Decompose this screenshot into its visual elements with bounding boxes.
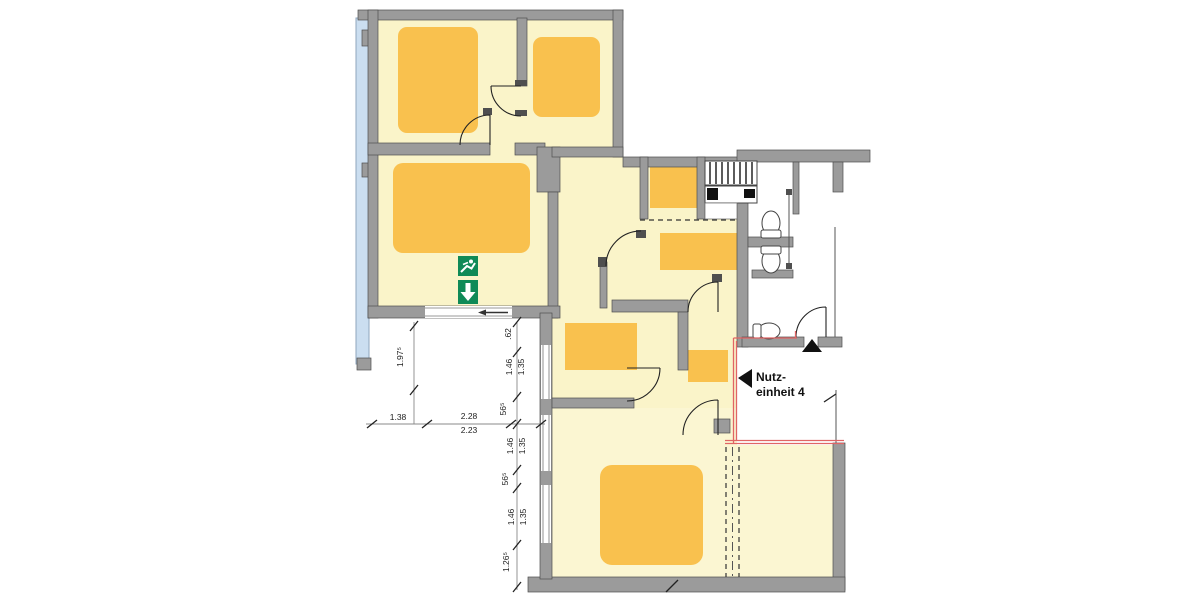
dimension-label: 1.35 [516, 358, 526, 375]
furniture-small-top [650, 167, 697, 208]
dimension-label: 1.35 [517, 437, 527, 454]
dimension-label: 1.46 [505, 437, 515, 454]
furniture-hall [660, 233, 740, 270]
room-bottom-right [737, 445, 833, 578]
dimension-label: 1.46 [506, 508, 516, 525]
shaft-detail [744, 189, 755, 198]
window [541, 345, 551, 399]
exit-sign [458, 256, 478, 304]
dimension-label: 56⁵ [500, 473, 510, 486]
unit-label-line2: einheit 4 [756, 385, 805, 399]
shaft-detail [707, 188, 718, 200]
dimension-label: 1.97⁵ [395, 347, 405, 367]
furniture-corridor [688, 350, 728, 382]
door-jamb [712, 274, 722, 282]
dimension-label: 1.38 [390, 412, 407, 422]
toilet-tank [753, 324, 761, 338]
balcony-wall-end [357, 358, 371, 370]
floorplan-svg: Nutz- einheit 4 1.97⁵1.382.282.23.621.46… [0, 0, 1200, 600]
bed-living [393, 163, 530, 253]
door-jamb [515, 80, 527, 86]
toilet-tank [761, 246, 781, 254]
bed-bottom [600, 465, 703, 565]
bed-top-right [533, 37, 600, 117]
floorplan-canvas: Nutz- einheit 4 1.97⁵1.382.282.23.621.46… [0, 0, 1200, 600]
dimension-label: 56⁵ [498, 403, 508, 416]
door-jamb [483, 108, 492, 115]
dimension-label: 1.46 [504, 358, 514, 375]
door-jamb [515, 110, 527, 116]
door-jamb [786, 189, 792, 195]
window-arrow-opening [425, 306, 512, 318]
dimension-label: .62 [503, 328, 513, 340]
toilet-tank [761, 230, 781, 238]
dimension-label: 1.35 [518, 508, 528, 525]
bed-top-left [398, 27, 478, 133]
dimension-label: 2.28 [461, 411, 478, 421]
dimension-label: 1.26⁵ [501, 552, 511, 572]
furniture-middle [565, 323, 637, 370]
unit-label-line1: Nutz- [756, 370, 786, 384]
dimension-label: 2.23 [461, 425, 478, 435]
window [541, 485, 551, 543]
